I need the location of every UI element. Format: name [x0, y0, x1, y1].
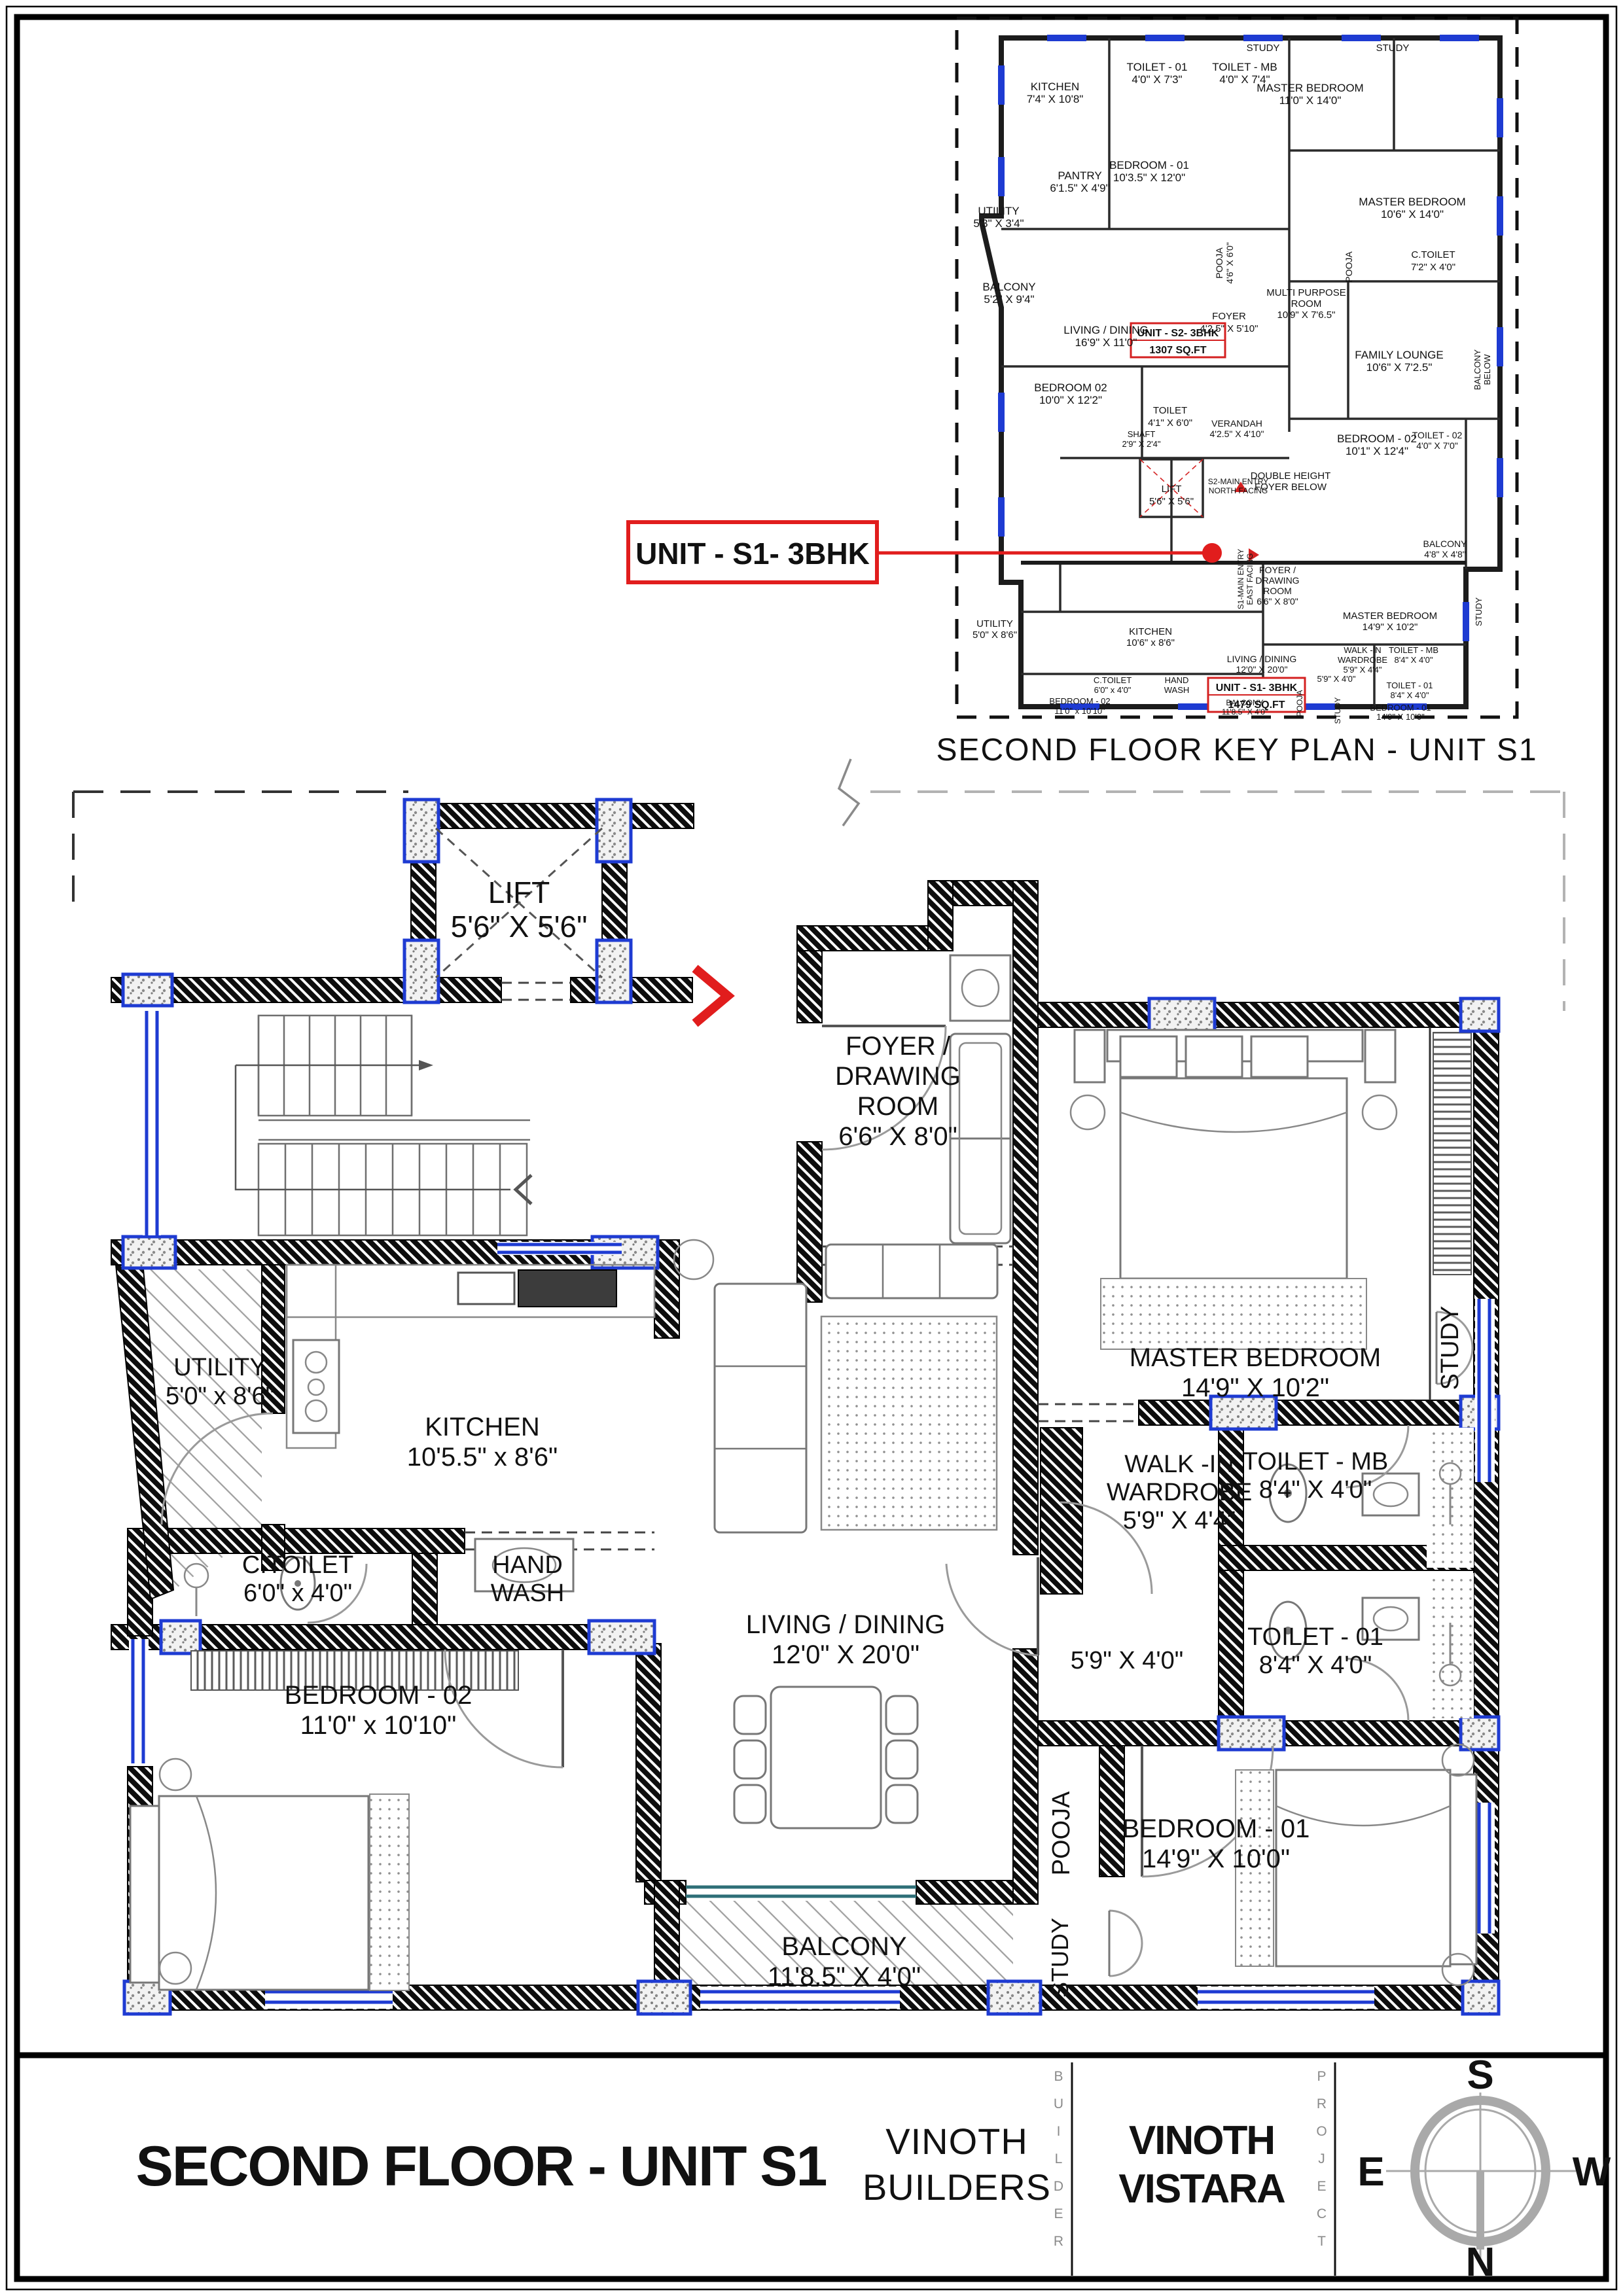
kp-bedroom02-s2: BEDROOM 0210'0" X 12'2" [1034, 381, 1107, 406]
main-entry-arrow [695, 968, 728, 1023]
kp-verandah-s2: VERANDAH4'2.5" X 4'10" [1209, 418, 1264, 439]
kp-toilet01-s1: TOILET - 018'4" X 4'0" [1386, 680, 1433, 700]
ctoilet-label: C.TOILET6'0" x 4'0" [242, 1551, 353, 1607]
toilet-mb-label: TOILET - MB8'4" X 4'0" [1243, 1448, 1388, 1504]
kitchen-window [497, 1242, 622, 1255]
kp-dh-foyer: DOUBLE HEIGHTFOYER BELOW [1251, 470, 1331, 493]
project-name-line1: VINOTH [1129, 2118, 1274, 2163]
kp-family-lounge: FAMILY LOUNGE10'6" X 7'2.5" [1355, 349, 1443, 374]
stair-window [143, 1011, 161, 1235]
kp-pooja-s1: POOJA [1295, 690, 1304, 717]
kp-pooja-3: POOJA [1344, 251, 1354, 283]
kp-entry-s1: S1-MAIN ENTRYEAST FACING [1236, 549, 1255, 609]
kp-bedroom02-3: BEDROOM - 0210'1" X 12'4" [1337, 433, 1417, 457]
unit-callout: UNIT - S1- 3BHK [628, 522, 1222, 582]
kp-utility-s1: UTILITY5'0" X 8'6" [972, 618, 1017, 641]
kp-pooja-s2: POOJA4'6" X 6'0" [1214, 242, 1235, 284]
master-bedroom-label: MASTER BEDROOM14'9" X 10'2" [1130, 1343, 1381, 1402]
key-plan: UNIT - S2- 3BHK 1307 SQ.FT UNIT - S1- 3B… [628, 18, 1538, 768]
study-b01-label: STUDY [1046, 1918, 1073, 1998]
pooja-label: POOJA [1048, 1791, 1075, 1875]
lift-label: LIFT5'6" X 5'6" [451, 875, 588, 944]
compass-west: W [1573, 2149, 1611, 2195]
kp-toilet01-s2: TOILET - 014'0" X 7'3" [1127, 61, 1188, 86]
compass-rose: S N E W [1357, 2053, 1611, 2285]
ctoilet-window [129, 1639, 149, 1763]
kp-ctoilet-3: C.TOILET7'2" X 4'0" [1411, 249, 1455, 273]
kp-study-s1b: STUDY [1333, 698, 1342, 724]
main-floor-plan: LIFT5'6" X 5'6"FOYER /DRAWINGROOM6'6" X … [73, 759, 1564, 2014]
kp-ctoilet-s1: C.TOILET6'0" x 4'0" [1094, 675, 1132, 695]
master-bed [1071, 1030, 1472, 1384]
kp-master-s1: MASTER BEDROOM14'9" X 10'2" [1343, 610, 1437, 633]
kp-toilet02-3: TOILET - 024'0" X 7'0" [1412, 430, 1463, 451]
kp-master-1: MASTER BEDROOM11'0" X 14'0" [1257, 82, 1363, 107]
kp-mpr: MULTI PURPOSEROOM10'9" X 7'6.5" [1266, 287, 1346, 321]
master-window [1475, 1299, 1495, 1482]
kp-passage-s1: 5'9" X 4'0" [1317, 674, 1355, 684]
corridor-door [946, 1564, 1038, 1655]
toilet01-label: TOILET - 018'4" X 4'0" [1247, 1623, 1383, 1679]
floor-plan-sheet: { "key_plan": { "caption": "SECOND FLOOR… [0, 0, 1623, 2296]
kp-pantry-s2: PANTRY6'1.5" X 4'9" [1050, 169, 1109, 194]
kp-master-2: MASTER BEDROOM10'6" X 14'0" [1359, 196, 1465, 221]
kp-walkin-s1: WALK -INWARDROBE5'9" X 4'4" [1338, 645, 1387, 675]
kp-bedroom02-s1: BEDROOM - 0211'0" x 10'10" [1049, 696, 1110, 716]
foyer-furniture [695, 955, 1010, 1243]
kp-living-s2: LIVING / DINING16'9" X 11'0" [1063, 324, 1148, 349]
balcony-sill [686, 1887, 916, 1896]
kp-shaft-s2: SHAFT2'9" X 2'4" [1122, 429, 1160, 449]
kp-balcony-s1: BALCONY11'8.5" X 4'0" [1222, 698, 1268, 716]
kp-bedroom01-s1: BEDROOM - 0114'9" X 10'0" [1370, 703, 1431, 722]
title-block: SECOND FLOOR - UNIT S1 VINOTH BUILDERS B… [136, 2053, 1611, 2285]
unit-s2-area: 1307 SQ.FT [1149, 345, 1206, 356]
sheet-title: SECOND FLOOR - UNIT S1 [136, 2135, 827, 2198]
foyer-label: FOYER /DRAWINGROOM6'6" X 8'0" [835, 1032, 961, 1151]
kp-kitchen-s1: KITCHEN10'6" x 8'6" [1126, 626, 1175, 648]
sheet-canvas: UNIT - S2- 3BHK 1307 SQ.FT UNIT - S1- 3B… [0, 0, 1623, 2296]
kp-bedroom01-s2: BEDROOM - 0110'3.5" X 12'0" [1109, 159, 1189, 184]
builder-name-line2: BUILDERS [863, 2166, 1051, 2208]
living-label: LIVING / DINING12'0" X 20'0" [746, 1610, 946, 1669]
bedroom01-window [1475, 1803, 1495, 1934]
dining-table [734, 1687, 918, 1828]
bedroom02-label: BEDROOM - 0211'0" x 10'10" [285, 1681, 473, 1740]
project-vertical-label: PROJECT [1316, 2069, 1327, 2249]
kp-study-s1a: STUDY [1474, 597, 1484, 626]
living-furniture [674, 1240, 997, 1532]
kp-handwash-s1: HANDWASH [1164, 675, 1190, 695]
callout-label: UNIT - S1- 3BHK [635, 537, 870, 571]
kp-balcony-3: BALCONY4'8" X 4'8" [1423, 539, 1468, 559]
kp-toiletmb-s1: TOILET - MB8'4" X 4'0" [1389, 645, 1438, 665]
kp-living-s1: LIVING / DINING12'0" X 20'0" [1227, 654, 1297, 675]
kp-utility-s2: UTILITY5'3" X 3'4" [973, 205, 1024, 230]
compass-east: E [1357, 2149, 1384, 2195]
compass-north: N [1466, 2240, 1495, 2285]
study-mb-label: STUDY [1436, 1306, 1464, 1390]
key-plan-caption: SECOND FLOOR KEY PLAN - UNIT S1 [936, 733, 1537, 768]
handwash-label: HANDWASH [491, 1551, 565, 1607]
key-plan-labels: KITCHEN7'4" X 10'8"TOILET - 014'0" X 7'3… [972, 43, 1492, 724]
callout-dot [1202, 543, 1222, 563]
kp-study-2: STUDY [1376, 43, 1410, 54]
builder-name-line1: VINOTH [885, 2121, 1028, 2162]
compass-south: S [1467, 2053, 1493, 2098]
walkin-label: WALK -INWARDROBE5'9" X 4'4" [1107, 1451, 1252, 1534]
kp-balcony-below: BALCONYBELOW [1472, 349, 1492, 390]
kp-balcony-s2: BALCONY5'2" X 9'4" [982, 281, 1035, 306]
unit-s1-label: UNIT - S1- 3BHK [1216, 682, 1298, 694]
break-line-symbol [839, 759, 859, 826]
builder-vertical-label: BUILDER [1054, 2069, 1064, 2249]
project-name-line2: VISTARA [1118, 2166, 1285, 2212]
staircase [236, 1016, 531, 1235]
kitchen-label: KITCHEN10'5.5" x 8'6" [407, 1413, 558, 1472]
kp-study-1: STUDY [1247, 43, 1280, 54]
passage-label: 5'9" X 4'0" [1071, 1647, 1183, 1674]
kp-kitchen-s2: KITCHEN7'4" X 10'8" [1027, 80, 1084, 105]
kp-toilet-s2: TOILET4'1" X 6'0" [1148, 405, 1192, 429]
